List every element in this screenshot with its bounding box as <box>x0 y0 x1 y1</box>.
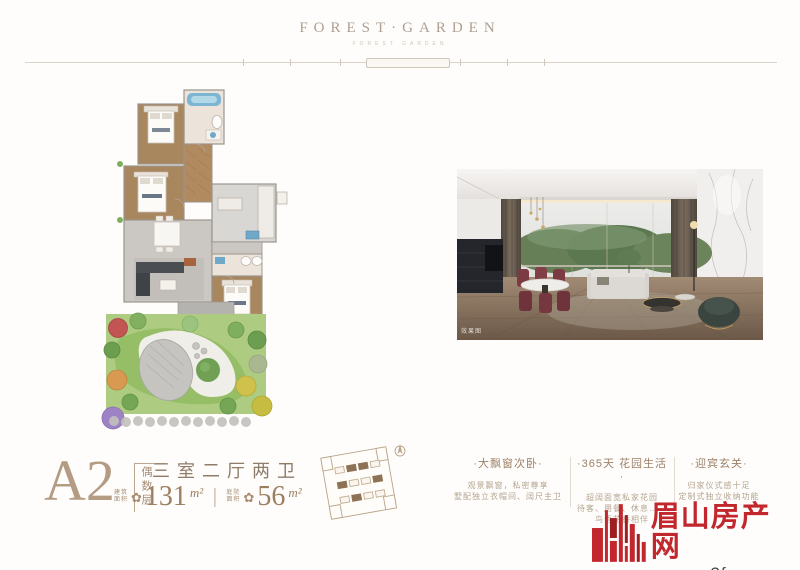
area-stamp-icon: ✿ <box>243 491 254 504</box>
building-area-unit: m² <box>190 485 203 501</box>
divider-tick <box>544 59 545 66</box>
area-label-courtyard: 庭院面积 <box>226 490 240 504</box>
area-stamp-icon: ✿ <box>131 491 142 504</box>
area-separator: | <box>212 486 217 509</box>
feature-body: 归家仪式感十足 定制式独立收纳功能 <box>678 480 760 502</box>
feature-title: ·大飘窗次卧· <box>452 455 564 471</box>
watermark-name: 眉山房产网 <box>651 502 800 562</box>
feature-title: ·迎宾玄关· <box>678 455 760 471</box>
building-area-value: 131 <box>145 483 187 511</box>
feature-title: ·365天 花园生活· <box>576 455 668 483</box>
courtyard-area-value: 56 <box>257 483 285 511</box>
site-key-plan <box>312 438 412 533</box>
watermark-logo: 眉山房产网 www.m3fc.com <box>592 502 800 570</box>
unit-code: A2 <box>44 450 115 512</box>
feature-divider <box>570 457 571 507</box>
area-row: 建筑面积 ✿ 131 m² | 庭院面积 ✿ 56 m² <box>114 483 302 511</box>
area-label-building: 建筑面积 <box>114 490 128 504</box>
brand-subtitle: FOREST GARDEN <box>0 41 800 47</box>
feature-body: 观景飘窗，私密尊享 墅配独立衣帽间、阔尺主卫 <box>452 480 564 502</box>
divider-center-pill <box>366 58 450 68</box>
divider-tick <box>243 59 244 66</box>
divider-tick <box>340 59 341 66</box>
watermark-url: www.m3fc.com <box>651 564 800 570</box>
photo-caption: 效果图 <box>461 326 482 335</box>
feature-divider <box>674 457 675 507</box>
divider-tick <box>290 59 291 66</box>
floor-plan <box>100 88 290 432</box>
brand-title: FOREST·GARDEN <box>0 20 800 37</box>
feature-column-foyer: ·迎宾玄关· 归家仪式感十足 定制式独立收纳功能 <box>678 455 760 502</box>
watermark-text: 眉山房产网 www.m3fc.com <box>651 502 800 570</box>
skyline-icon <box>592 502 646 564</box>
feature-column-bay-window: ·大飘窗次卧· 观景飘窗，私密尊享 墅配独立衣帽间、阔尺主卫 <box>452 455 564 502</box>
unit-layout: 三室二厅两卫 <box>152 457 302 483</box>
courtyard-area-unit: m² <box>288 485 301 501</box>
divider-tick <box>507 59 508 66</box>
interior-rendering <box>457 169 763 340</box>
divider-tick <box>460 59 461 66</box>
brochure-page: FOREST·GARDEN FOREST GARDEN <box>0 0 800 570</box>
north-arrow-icon <box>395 444 405 456</box>
